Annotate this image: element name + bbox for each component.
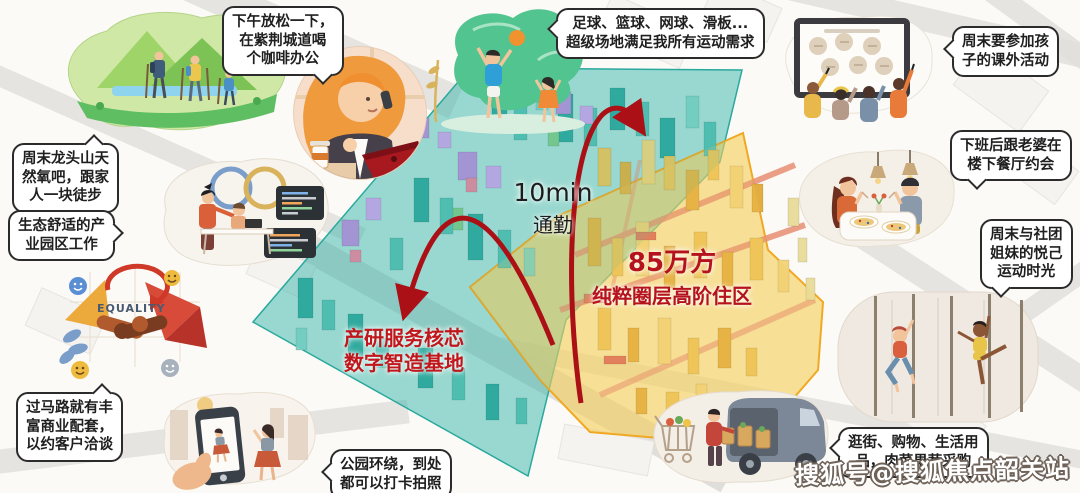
bubble-line: 超级场地满足我所有运动需求 [566, 34, 755, 53]
bubble-line: 人一块徒步 [22, 187, 109, 206]
commute-word: 通勤 [498, 209, 608, 238]
bubble-line: 下班后跟老婆在 [960, 137, 1062, 156]
bubble-line: 富商业配套， [26, 418, 113, 437]
equality-handshake-illustration: EQUALITY [50, 252, 220, 380]
bubble-line: 公园环绕，到处 [340, 456, 442, 475]
speech-bubble-industry-work: 生态舒适的产 业园区工作 [8, 210, 115, 261]
bubble-line: 然氧吧，跟家 [22, 169, 109, 188]
commute-time-label: 10min 通勤 [498, 178, 608, 238]
bubble-line: 个咖啡办公 [232, 50, 334, 69]
leaf-cluster [57, 327, 89, 367]
watermark: 搜狐号@搜狐焦点韶关站 [795, 448, 1071, 490]
speech-bubble-kids: 周末要参加孩 子的课外活动 [952, 26, 1059, 77]
photo-shoot-illustration [150, 380, 322, 490]
kids-whiteboard-illustration [766, 4, 938, 130]
bubble-line: 足球、篮球、网球、滑板... [566, 15, 755, 34]
bubble-line: 周末与社团 [990, 226, 1063, 245]
bubble-line: 周末龙头山天 [22, 150, 109, 169]
bubble-line: 子的课外活动 [962, 52, 1049, 71]
bubble-line: 生态舒适的产 [18, 217, 105, 236]
orange-ball [509, 30, 525, 46]
residential-zone-label: 85万方 纯粹圈层高阶住区 [566, 242, 778, 309]
bubble-line: 都可以打卡拍照 [340, 475, 442, 493]
speech-bubble-coffee: 下午放松一下， 在紫荆城道喝 个咖啡办公 [222, 6, 344, 76]
bubble-line: 逛街、购物、生活用 [848, 434, 979, 453]
handshake-icon [95, 314, 169, 341]
bubble-line: 周末要参加孩 [962, 33, 1049, 52]
bubble-line: 业园区工作 [18, 236, 105, 255]
speech-bubble-hiking: 周末龙头山天 然氧吧，跟家 人一块徒步 [12, 143, 119, 213]
bubble-line: 下午放松一下， [232, 13, 334, 32]
industrial-zone-label: 产研服务核芯 数字智造基地 [326, 326, 482, 376]
speech-bubble-dinner: 下班后跟老婆在 楼下餐厅约会 [950, 130, 1072, 181]
restaurant-date-illustration [782, 134, 970, 260]
bubble-line: 在紫荆城道喝 [232, 32, 334, 51]
equality-label: EQUALITY [97, 302, 166, 315]
bubble-line: 姐妹的悦己 [990, 245, 1063, 264]
lifestyle-map-infographic: 10min 通勤 85万方 纯粹圈层高阶住区 产研服务核芯 数字智造基地 [0, 0, 1080, 493]
speech-bubble-business: 过马路就有丰 富商业配套， 以约客户洽谈 [16, 392, 123, 462]
bubble-line: 以约客户洽谈 [26, 436, 113, 455]
speech-bubble-sisters: 周末与社团 姐妹的悦己 运动时光 [980, 219, 1073, 289]
pole-fitness-illustration [834, 286, 1042, 428]
commute-minutes: 10min [498, 178, 608, 207]
speech-bubble-sports: 足球、篮球、网球、滑板... 超级场地满足我所有运动需求 [556, 8, 765, 59]
speech-bubble-park: 公园环绕，到处 都可以打卡拍照 [330, 449, 452, 493]
